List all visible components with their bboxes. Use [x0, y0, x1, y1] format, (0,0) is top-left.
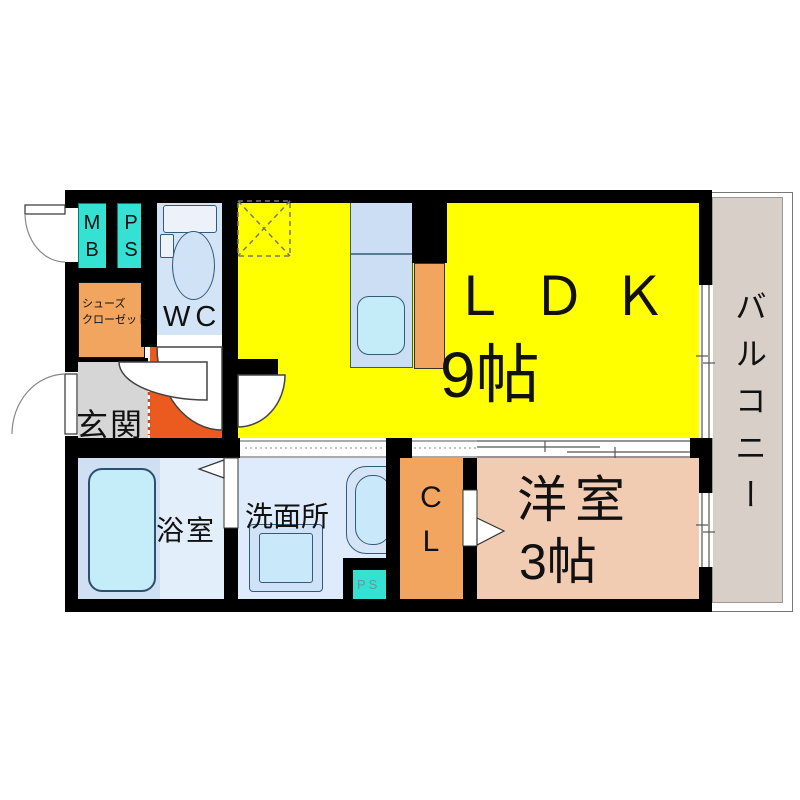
shoe-closet-door-arc: [119, 362, 207, 400]
western-sliding-door: [477, 441, 690, 458]
balcony-label: バルコニー: [726, 290, 772, 525]
shoe-closet-label-line1: シューズ: [82, 296, 148, 312]
washroom-doorway: [240, 441, 386, 457]
ldk-door-arc: [238, 375, 285, 427]
ldk-window: [696, 285, 715, 438]
dashed-placement-square: [238, 201, 290, 256]
meter-box-label: MB: [80, 210, 104, 264]
floor-plan: ＬＤＫ 9帖 洋室 3帖 バルコニー 浴室 洗面所 玄関 WC CL MB PS…: [0, 0, 800, 800]
shoe-closet-label: シューズ クローゼット: [82, 296, 148, 328]
closet-door-triangle: [477, 518, 504, 545]
ldk-label: ＬＤＫ: [452, 252, 692, 331]
pipe-space-label: PS: [119, 210, 143, 264]
bathroom-label: 浴室: [156, 509, 216, 549]
shoe-closet-label-line2: クローゼット: [82, 312, 148, 328]
western-room-size-label: 3帖: [519, 522, 597, 594]
closet-top-opening: [412, 441, 477, 457]
bath-door-leaf: [224, 458, 238, 528]
closet-label: CL: [413, 476, 449, 564]
meter-box-door-leaf: [25, 205, 65, 214]
toilet-label: WC: [163, 301, 221, 334]
bath-door-triangle: [199, 460, 224, 478]
washroom-label: 洗面所: [245, 495, 329, 535]
meter-box-door-arc: [25, 214, 65, 262]
entrance-door-arc: [12, 374, 65, 434]
closet-door-leaf: [463, 490, 477, 546]
entrance-label: 玄関: [76, 400, 144, 446]
western-window: [696, 493, 715, 567]
pipe-space-small-label: PS: [357, 577, 380, 592]
ldk-size-label: 9帖: [440, 324, 540, 416]
